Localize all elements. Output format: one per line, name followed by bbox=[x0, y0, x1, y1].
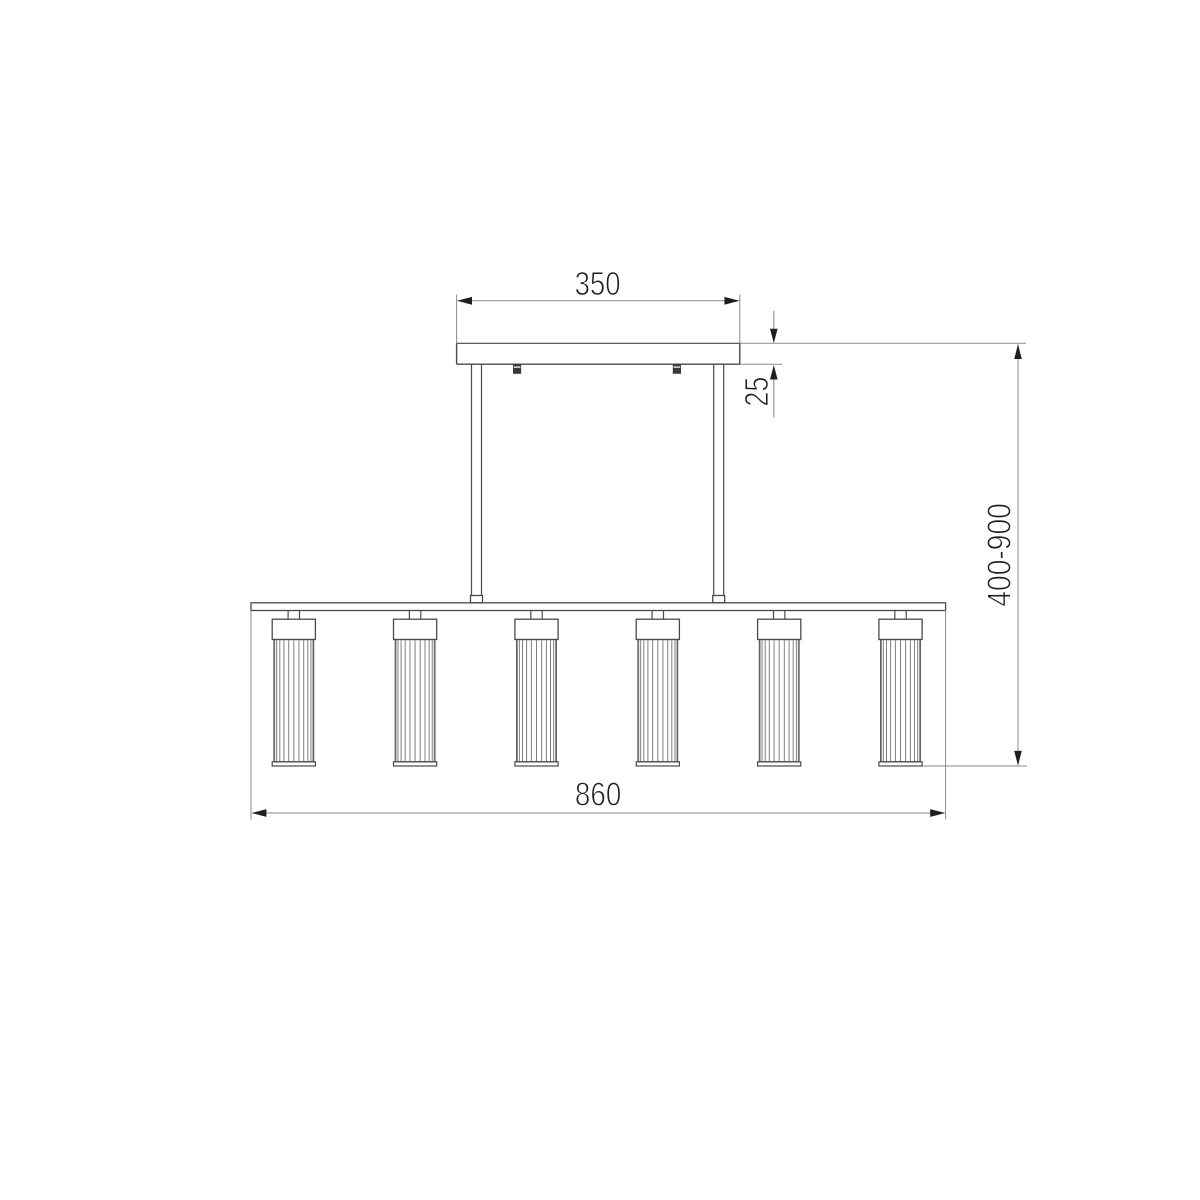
svg-text:400-900: 400-900 bbox=[981, 503, 1018, 607]
svg-text:350: 350 bbox=[575, 265, 621, 302]
svg-text:25: 25 bbox=[738, 377, 775, 407]
svg-text:860: 860 bbox=[575, 776, 621, 813]
